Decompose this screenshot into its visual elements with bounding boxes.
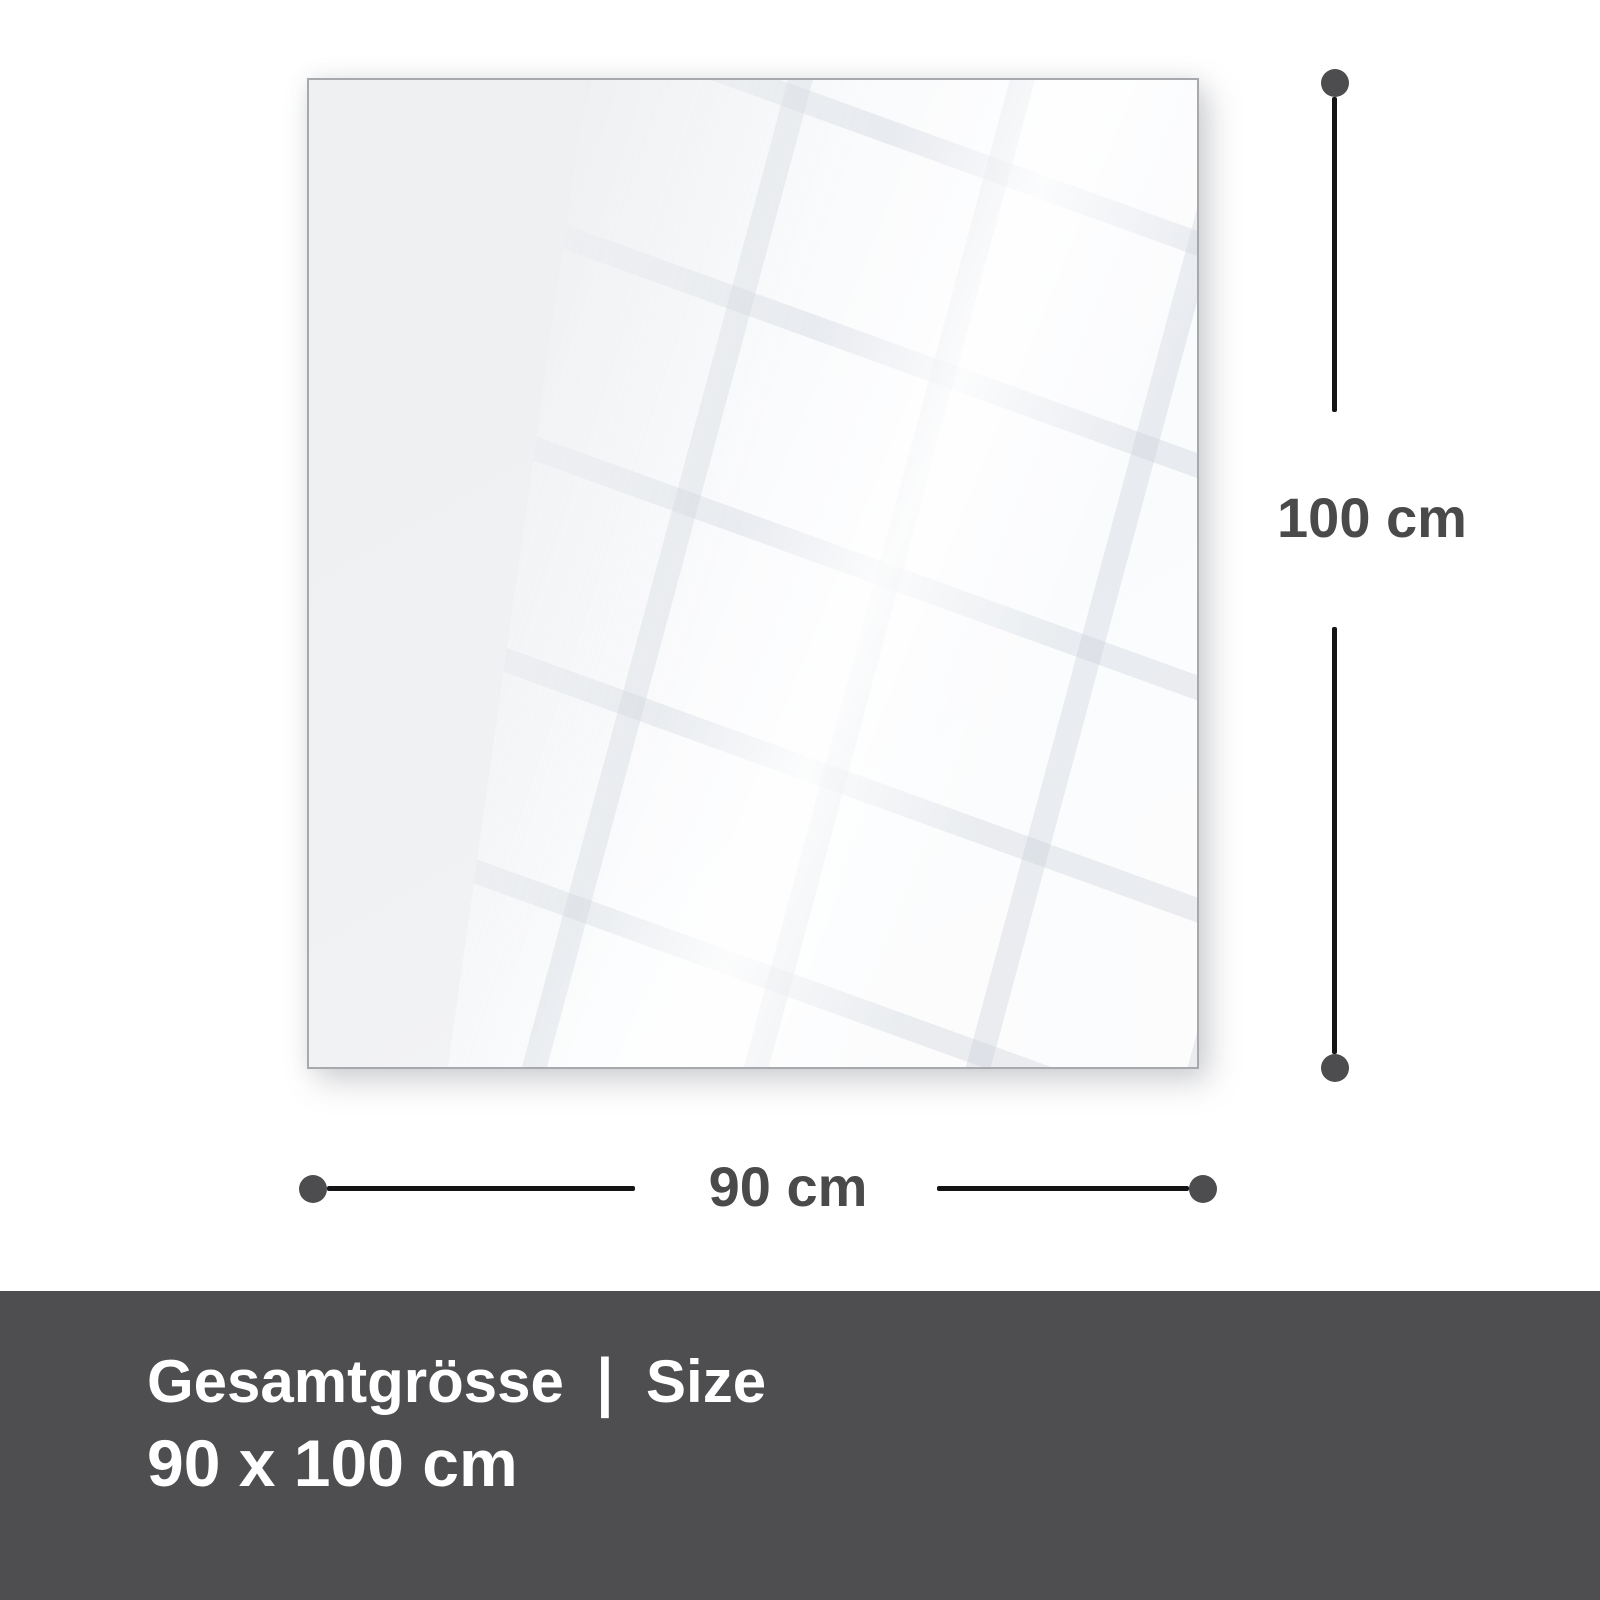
size-footer: Gesamtgrösse | Size 90 x 100 cm bbox=[0, 1291, 1600, 1600]
footer-title-english: Size bbox=[646, 1348, 766, 1415]
footer-size-value: 90 x 100 cm bbox=[147, 1427, 1600, 1499]
dimension-endpoint-dot-bottom bbox=[1321, 1054, 1349, 1082]
dimension-endpoint-dot-top bbox=[1321, 69, 1349, 97]
dimension-endpoint-dot-left bbox=[299, 1175, 327, 1203]
horizontal-dimension-line-right bbox=[937, 1186, 1189, 1191]
footer-title: Gesamtgrösse | Size bbox=[147, 1349, 1600, 1415]
horizontal-dimension-line-left bbox=[327, 1186, 635, 1191]
dimension-endpoint-dot-right bbox=[1189, 1175, 1217, 1203]
height-dimension-label: 100 cm bbox=[1272, 490, 1472, 546]
glass-panel bbox=[307, 78, 1199, 1069]
width-dimension-label: 90 cm bbox=[688, 1159, 888, 1215]
glass-glare-streak bbox=[307, 78, 1199, 1069]
footer-title-separator: | bbox=[597, 1346, 614, 1417]
vertical-dimension-line-lower bbox=[1332, 627, 1337, 1054]
product-size-diagram: 100 cm 90 cm Gesamtgrösse | Size 90 x 10… bbox=[0, 0, 1600, 1600]
vertical-dimension-line-upper bbox=[1332, 97, 1337, 412]
footer-title-german: Gesamtgrösse bbox=[147, 1348, 564, 1415]
